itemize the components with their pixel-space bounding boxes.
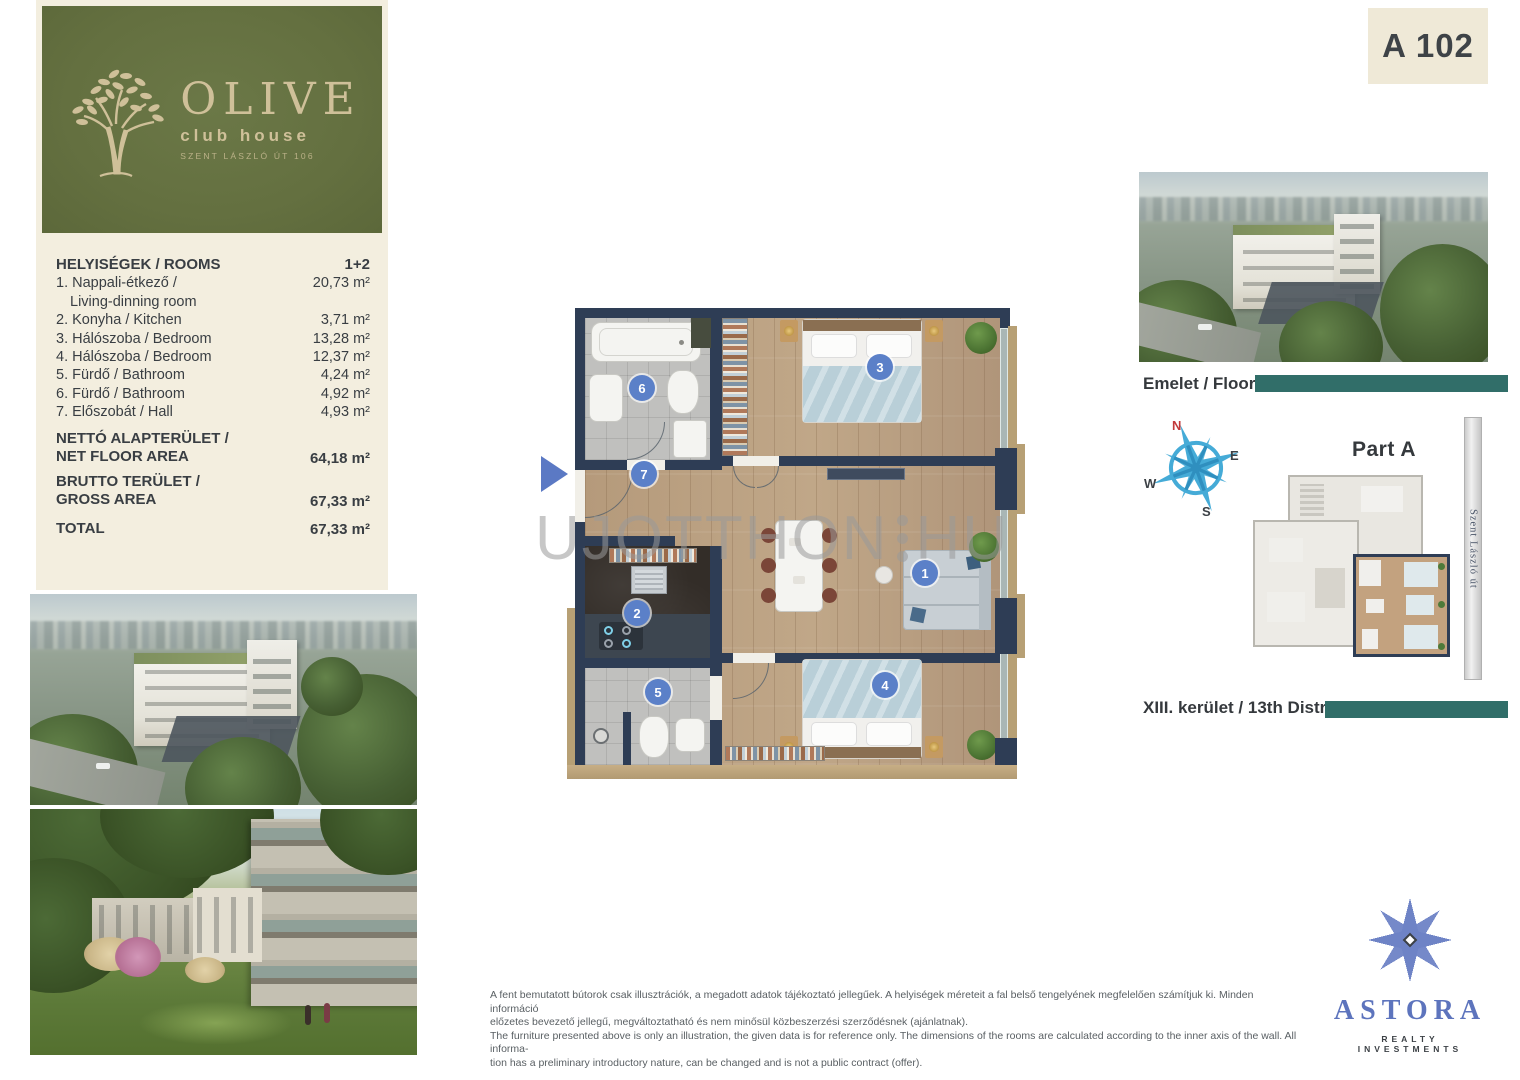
bed-bedroom-4 — [803, 660, 921, 758]
part-a-label: Part A — [1352, 438, 1416, 462]
table-row: 7. Előszobát / Hall 4,93 m² — [56, 403, 370, 421]
disclaimer-en-line1: The furniture presented above is only an… — [490, 1030, 1300, 1057]
brochure-page: OLIVE club house SZENT LÁSZLÓ ÚT 106 HEL… — [0, 0, 1520, 1080]
plant — [969, 532, 999, 562]
logo-subtitle: club house — [180, 126, 362, 146]
floor-overview-miniplan — [1253, 472, 1453, 664]
table-row: 4. Hálószoba / Bedroom 12,37 m² — [56, 348, 370, 366]
astora-logo: ASTORA REALTY INVESTMENTS — [1330, 898, 1490, 1054]
dining-table — [775, 520, 823, 612]
left-info-panel: OLIVE club house SZENT LÁSZLÓ ÚT 106 HEL… — [36, 0, 388, 590]
logo-address: SZENT LÁSZLÓ ÚT 106 — [180, 151, 362, 161]
chair — [822, 588, 837, 603]
disclaimer-hu-line1: A fent bemutatott bútorok csak illusztrá… — [490, 989, 1300, 1016]
compass-west-label: W — [1144, 476, 1156, 491]
sideboard — [827, 468, 905, 480]
room-number-3: 3 — [867, 354, 893, 380]
kitchen-shelf — [609, 548, 697, 563]
compass-icon — [1138, 416, 1254, 526]
shower-drain — [593, 728, 609, 744]
room-number-1: 1 — [912, 560, 938, 586]
cabinet — [673, 420, 707, 458]
olive-logo: OLIVE club house SZENT LÁSZLÓ ÚT 106 — [42, 6, 382, 233]
toilet — [667, 370, 699, 414]
bed-bedroom-3 — [803, 320, 921, 422]
compass-rose: N E W S — [1138, 416, 1254, 526]
room-number-6: 6 — [629, 375, 655, 401]
wardrobe-shelf — [722, 318, 748, 456]
apartment-floorplan: 1 2 3 4 5 6 7 — [575, 308, 1010, 775]
coffee-table — [875, 566, 893, 584]
disclaimer-hu-line2: előzetes bevezető jellegű, megváltoztath… — [490, 1016, 1300, 1030]
chair — [822, 528, 837, 543]
street-label: Szent László út — [1468, 509, 1479, 589]
disclaimer: A fent bemutatott bútorok csak illusztrá… — [490, 989, 1300, 1070]
nightstand — [780, 320, 798, 342]
sink — [589, 374, 623, 422]
room-number-2: 2 — [624, 600, 650, 626]
table-header-value: 1+2 — [345, 256, 370, 274]
compass-east-label: E — [1230, 448, 1239, 463]
table-row: 1. Nappali-étkező / 20,73 m² — [56, 274, 370, 292]
net-area-row: NETTÓ ALAPTERÜLET / NET FLOOR AREA 64,18… — [56, 430, 370, 467]
room-area-table: HELYISÉGEK / ROOMS 1+2 1. Nappali-étkező… — [56, 256, 370, 538]
compass-north-label: N — [1172, 418, 1181, 433]
disclaimer-en-line2: tion has a preliminary introductory natu… — [490, 1057, 1300, 1071]
courtyard-garden-photo — [30, 809, 417, 1055]
table-row: 3. Hálószoba / Bedroom 13,28 m² — [56, 330, 370, 348]
entrance-arrow-icon — [541, 456, 568, 492]
chair — [761, 558, 776, 573]
terrace-strip — [567, 765, 1017, 779]
bookshelf — [725, 746, 825, 761]
astora-tagline: REALTY INVESTMENTS — [1330, 1034, 1490, 1054]
sink — [675, 718, 705, 752]
table-header-label: HELYISÉGEK / ROOMS — [56, 256, 220, 274]
entrance-door-gap — [575, 470, 585, 522]
astora-star-icon — [1368, 898, 1452, 982]
building-photo-right — [1139, 172, 1488, 362]
compass-south-label: S — [1202, 504, 1211, 519]
chair — [822, 558, 837, 573]
aerial-building-photo — [30, 594, 417, 805]
highlighted-unit — [1353, 554, 1450, 657]
street-bar: Szent László út — [1464, 417, 1482, 680]
unit-number-badge: A 102 — [1368, 8, 1488, 84]
sofa-pillow — [910, 607, 927, 624]
toilet — [639, 716, 669, 758]
floor-label: Emelet / Floor 1 — [1143, 374, 1270, 394]
district-label: XIII. kerület / 13th District — [1143, 698, 1346, 718]
nightstand — [925, 320, 943, 342]
plant — [965, 322, 997, 354]
table-header: HELYISÉGEK / ROOMS 1+2 — [56, 256, 370, 274]
table-row-sub: Living-dinning room — [56, 293, 370, 311]
astora-name: ASTORA — [1330, 995, 1490, 1027]
logo-title: OLIVE — [180, 78, 362, 122]
plant — [967, 730, 997, 760]
chair — [761, 588, 776, 603]
nightstand — [925, 736, 943, 758]
floor-label-bar — [1255, 375, 1508, 392]
gross-area-row: BRUTTO TERÜLET / GROSS AREA 67,33 m² — [56, 473, 370, 510]
total-row: TOTAL 67,33 m² — [56, 520, 370, 539]
room-number-7: 7 — [631, 461, 657, 487]
room-number-5: 5 — [645, 679, 671, 705]
room-number-4: 4 — [872, 672, 898, 698]
chair — [761, 528, 776, 543]
olive-tree-icon — [62, 52, 170, 187]
window-glass-wall — [1000, 328, 1008, 755]
district-label-bar — [1325, 701, 1508, 718]
table-row: 2. Konyha / Kitchen 3,71 m² — [56, 311, 370, 329]
table-row: 5. Fürdő / Bathroom 4,24 m² — [56, 366, 370, 384]
table-row: 6. Fürdő / Bathroom 4,92 m² — [56, 385, 370, 403]
